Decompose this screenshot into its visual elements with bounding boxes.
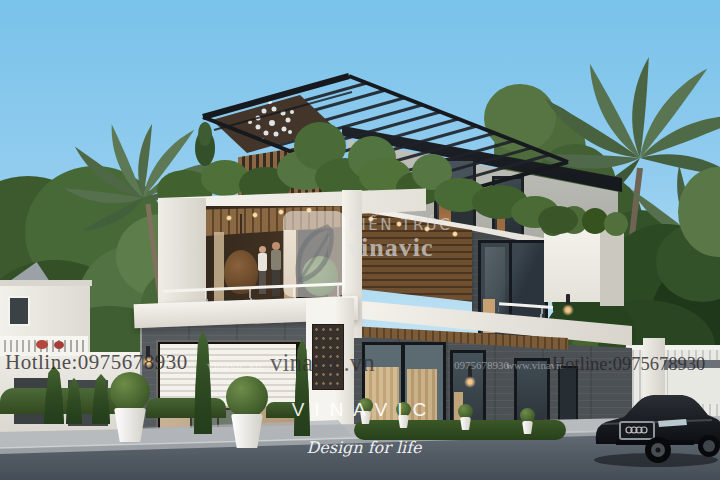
sconce-glow <box>142 356 154 368</box>
topiary-ball <box>226 376 268 418</box>
downlight <box>306 207 312 213</box>
architectural-render-canvas: Hotline:0975678930 vinavic.vn vinavic.vn… <box>0 0 720 480</box>
potted-shrub <box>458 404 473 419</box>
person-torso <box>258 253 267 271</box>
hanging-chair-cord <box>240 214 242 252</box>
black-sedan-car <box>592 378 720 470</box>
potted-shrub <box>520 408 535 423</box>
decorative-cnc-panel <box>312 324 344 390</box>
potted-shrub <box>358 398 373 413</box>
person-head <box>259 246 266 253</box>
potted-shrub <box>396 402 411 417</box>
topiary-ball <box>110 372 150 412</box>
facade-base-hedge <box>354 420 566 440</box>
rear-wheel-rim <box>703 440 715 452</box>
front-wheel-hub <box>656 448 661 453</box>
downlight <box>278 209 284 215</box>
hedge-row <box>146 398 226 418</box>
downlight <box>252 212 258 218</box>
person-torso <box>271 250 281 270</box>
downlight <box>226 215 232 221</box>
person-head <box>272 242 280 250</box>
